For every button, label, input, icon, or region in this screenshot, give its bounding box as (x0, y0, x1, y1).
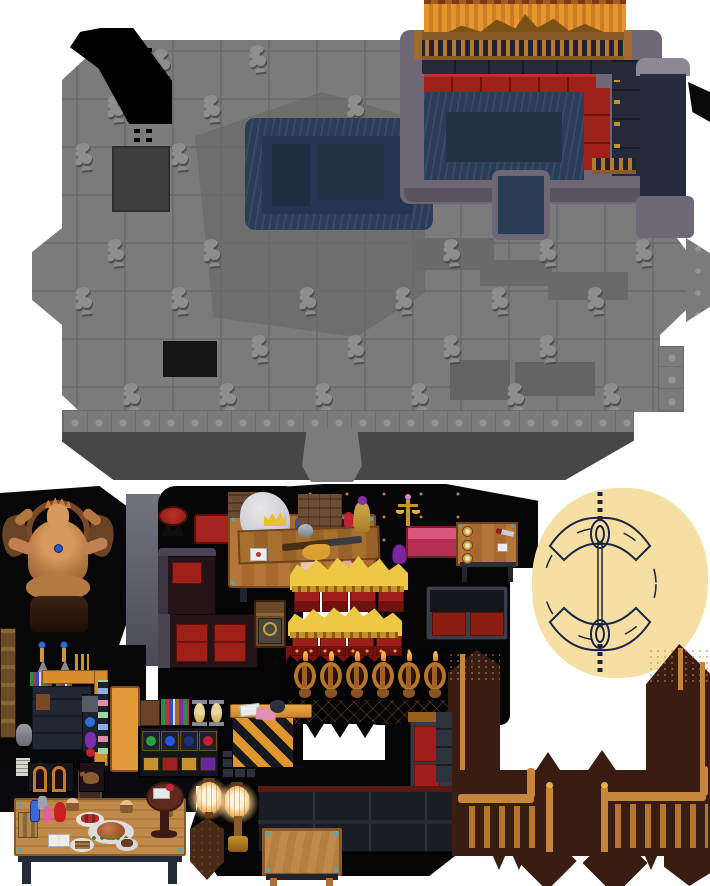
loot-table-leg (240, 586, 247, 602)
bench-long-seatline (258, 820, 458, 824)
balusters (606, 804, 708, 848)
chest-gold (181, 757, 197, 771)
floor-glyph (248, 334, 274, 364)
safe-ring (263, 622, 277, 636)
wax-seal (256, 552, 261, 557)
table-pin (511, 525, 514, 528)
black-tooth (355, 722, 375, 738)
teapot-body (83, 772, 99, 784)
floor-glyph (584, 286, 610, 316)
floor-glyph (600, 382, 626, 412)
shrine-cornice (414, 32, 632, 40)
floor-skirt-bump (302, 428, 362, 482)
plain-table-top (262, 828, 342, 876)
emblem-lineart (534, 490, 666, 678)
potion-purple (85, 732, 96, 748)
table-pin (334, 868, 338, 872)
food-table-rail (18, 856, 182, 862)
grilled-food (75, 841, 90, 849)
oil-lamp-base (377, 689, 389, 698)
tileset-canvas (0, 0, 710, 886)
gem-blue (165, 736, 175, 746)
rosette-border-col (658, 346, 684, 412)
floor-glyph (168, 142, 194, 172)
bottle-pink (43, 806, 52, 822)
table-pin (266, 832, 270, 836)
sofa-cushion (172, 562, 202, 584)
chest-pink (406, 526, 458, 558)
gold-candles-trio (75, 654, 89, 671)
floor-glyph (312, 382, 338, 412)
oil-lamp-base (299, 689, 311, 698)
gold-trim (290, 632, 398, 638)
counter-panel (110, 686, 140, 772)
round-table-feet (151, 830, 177, 838)
rail-post (546, 788, 553, 852)
floor-glyph (632, 238, 658, 268)
sofa2-cushion (214, 624, 246, 662)
statue-pedestal (30, 596, 88, 632)
bench-double-cushion (432, 612, 466, 636)
ladder (0, 628, 16, 738)
oil-lamp-post (380, 666, 385, 688)
blue-tab-inner (498, 176, 544, 234)
bench-seat-row-highlight (424, 74, 596, 77)
food-table-leg (168, 860, 177, 884)
carpet-blue-block (318, 144, 384, 200)
potion-red (86, 748, 95, 757)
oil-lamp-base (325, 689, 337, 698)
floor-glyph (120, 382, 146, 412)
glass-red (344, 512, 353, 527)
rail-post (601, 788, 608, 852)
black-tooth (305, 722, 325, 738)
oil-lamp-base (351, 689, 363, 698)
chest-red (162, 757, 178, 771)
floor-glyph (72, 142, 98, 172)
oil-lamp-post (432, 666, 437, 688)
table-pin (18, 802, 22, 806)
hookah (354, 502, 370, 532)
lantern-stand (234, 816, 242, 838)
scales-table-leg (508, 566, 513, 582)
rail-horizontal (458, 794, 534, 803)
book-spines (160, 698, 190, 726)
oil-lamp-base (429, 689, 441, 698)
black-dot-chain (146, 46, 152, 142)
floor-dark-pit (112, 146, 170, 212)
cupcake (120, 800, 133, 813)
oil-lamp-flame (433, 651, 438, 661)
stall-pouch (270, 700, 285, 713)
sofa-arm (158, 556, 168, 618)
gold-scatter (292, 646, 410, 656)
cupcake (66, 798, 79, 811)
floor-glyph (200, 238, 226, 268)
floor-glyph (440, 238, 466, 268)
gem-green (146, 736, 156, 746)
sofa2-back (158, 614, 170, 668)
candlestick-stem (40, 648, 44, 662)
floor-shadow-d (450, 360, 510, 400)
floor-glyph (72, 286, 98, 316)
floor-glyph (296, 286, 322, 316)
stool-top (158, 506, 188, 526)
candlestick-stem (62, 648, 66, 662)
floor-glyph (408, 382, 434, 412)
oil-lamp-flame (303, 651, 308, 661)
scales-table-leg (462, 566, 467, 582)
floor-glyph (246, 44, 272, 74)
floor-glyph (200, 94, 226, 124)
oil-lamp-flame (329, 651, 334, 661)
tag-strip (98, 680, 108, 754)
plain-table-leg (270, 878, 277, 886)
scale-pan (412, 510, 420, 514)
scale-pan (396, 510, 404, 514)
floor-glyph (488, 286, 514, 316)
potion-blue (85, 717, 95, 727)
scale-orb (405, 494, 411, 500)
oil-lamp-flame (355, 651, 360, 661)
brass-dial (462, 553, 473, 564)
gold-trim (292, 586, 404, 592)
hourglass-base (192, 722, 207, 726)
hourglass-bulb (194, 703, 205, 723)
shrine-column-face (640, 74, 686, 196)
scale-crossbar (398, 504, 418, 507)
bench-double-cushion (470, 612, 504, 636)
carpet-blue-block (272, 144, 310, 206)
box-brown (140, 700, 160, 726)
slate-wall (126, 494, 160, 666)
brass-dial (462, 540, 473, 551)
bench-hook-strip (614, 80, 620, 170)
balcony-peak (532, 752, 564, 776)
oil-lamp-flame (407, 651, 412, 661)
pot-silver (298, 524, 313, 537)
balusters (460, 806, 536, 848)
shrine-fence (416, 40, 630, 56)
oil-lamp-flame (381, 651, 386, 661)
statue-head (47, 504, 69, 528)
rail-vertical (527, 768, 535, 798)
sofa2-cushion (176, 624, 208, 662)
shrine-post (624, 30, 632, 60)
floor-glyph (536, 334, 562, 364)
gate-arch (33, 766, 47, 792)
table-pin (459, 525, 462, 528)
shrine-carpet-inner (446, 112, 562, 162)
plain-table-leg (326, 878, 333, 886)
gate-arch (52, 766, 66, 792)
black-piece-ne (688, 82, 710, 122)
shrine-column-foot (636, 196, 694, 238)
black-tooth (330, 722, 350, 738)
oil-lamp-base (403, 689, 415, 698)
oil-lamp-post (328, 666, 333, 688)
chest-gold (143, 757, 159, 771)
rail-horizontal (604, 792, 706, 801)
floor-glyph (536, 238, 562, 268)
floor-glyph (216, 382, 242, 412)
platform-edge-ne (686, 238, 710, 322)
table-pin (334, 832, 338, 836)
rail-vertical (700, 766, 708, 796)
round-table-item (166, 784, 174, 791)
chest-purple (200, 757, 216, 771)
shrine-rail-se-bar (592, 170, 636, 174)
lantern-body (224, 786, 250, 818)
domino-card (497, 543, 508, 552)
shrine-post (414, 30, 422, 60)
brass-dial (462, 526, 473, 537)
open-book (48, 834, 70, 847)
round-table-pedestal (160, 810, 169, 832)
balcony-peak (584, 750, 620, 776)
stone-jar (16, 724, 32, 746)
bench-long-top (258, 786, 458, 792)
floor-glyph (168, 286, 194, 316)
genie-bottle (392, 544, 407, 564)
hookah-orb (358, 496, 367, 505)
hourglass-bulb (211, 703, 222, 723)
gem-navy (184, 736, 194, 746)
balcony-tooth (492, 854, 506, 870)
genie-lamp (302, 544, 330, 560)
oil-lamp-post (302, 666, 307, 688)
floor-glyph (104, 238, 130, 268)
floor-glyph (392, 286, 418, 316)
cushion-block (194, 514, 232, 544)
bench-back-row (422, 60, 618, 74)
floor-glyph (504, 382, 530, 412)
dessert (121, 839, 133, 847)
lantern-tail (205, 812, 213, 818)
bottle-red (54, 802, 66, 822)
oil-lamp-post (406, 666, 411, 688)
oil-lamp-post (354, 666, 359, 688)
hourglass-base (209, 722, 224, 726)
floor-glyph (344, 334, 370, 364)
shelf-drawer-brown (36, 694, 50, 710)
food-table-leg (22, 860, 31, 884)
floor-glyph (440, 334, 466, 364)
table-pin (18, 848, 22, 852)
lantern-base (228, 836, 248, 852)
table-pin (178, 848, 182, 852)
statue-gem (54, 544, 63, 553)
black-dot-chain (134, 46, 140, 142)
gray-tile-strip (436, 712, 452, 782)
balcony-corner (664, 854, 710, 886)
floor-black-rect (163, 341, 217, 377)
stall-striped (232, 712, 294, 768)
balcony-dots (448, 652, 500, 682)
table-pin (266, 868, 270, 872)
bench-double-back (430, 590, 504, 612)
table-pin (231, 581, 235, 585)
gem-red (203, 736, 213, 746)
